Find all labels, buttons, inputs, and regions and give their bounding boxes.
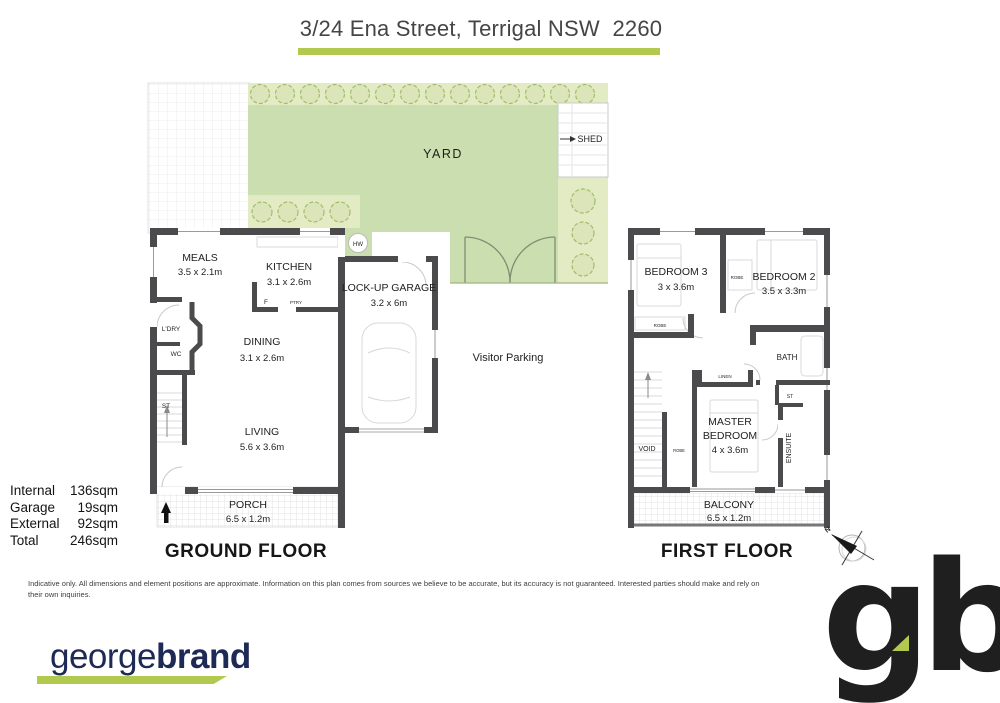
ground-floor-title: GROUND FLOOR xyxy=(165,541,327,562)
yard-lawn xyxy=(248,83,608,283)
stair-label: ST xyxy=(162,403,170,410)
meals-dims: 3.5 x 2.1m xyxy=(178,267,222,278)
area-value: 92sqm xyxy=(77,516,118,533)
pantry-label: PTRY xyxy=(290,300,302,305)
title-underline xyxy=(298,48,660,55)
paved-area xyxy=(148,83,250,233)
area-value: 19sqm xyxy=(77,500,118,517)
bedroom3-dims: 3 x 3.6m xyxy=(658,282,695,293)
gb-monogram: gb xyxy=(818,540,1000,703)
living-label: LIVING xyxy=(245,426,279,438)
robe-center-label: ROBE xyxy=(731,275,744,280)
laundry-label: L'DRY xyxy=(162,326,181,333)
area-value: 136sqm xyxy=(70,483,118,500)
dining-dims: 3.1 x 2.6m xyxy=(240,353,284,364)
area-label: External xyxy=(10,516,60,533)
hot-water-unit: HW xyxy=(349,234,368,253)
area-label: Internal xyxy=(10,483,55,500)
agency-logo-brand: brand xyxy=(156,637,251,676)
svg-text:HW: HW xyxy=(353,242,363,248)
void-label: VOID xyxy=(638,446,655,453)
meals-label: MEALS xyxy=(182,252,218,264)
master-dims: 4 x 3.6m xyxy=(712,445,749,456)
area-summary: Internal 136sqm Garage 19sqm External 92… xyxy=(10,483,118,549)
kitchen-label: KITCHEN xyxy=(266,261,312,273)
area-value: 246sqm xyxy=(70,533,118,550)
car-icon xyxy=(362,323,416,423)
agency-logo-underline xyxy=(37,676,227,684)
page-title: 3/24 Ena Street, Terrigal NSW 2260 xyxy=(281,16,681,42)
stairs-first xyxy=(634,372,662,476)
bath-label: BATH xyxy=(777,353,798,362)
yard-label: YARD xyxy=(423,147,463,161)
fridge-label: F xyxy=(264,299,268,306)
gb-monogram-text: gb xyxy=(822,529,1000,703)
disclaimer-text: Indicative only. All dimensions and elem… xyxy=(28,579,770,600)
first-floor-title: FIRST FLOOR xyxy=(661,541,793,562)
area-row: Total 246sqm xyxy=(10,533,118,550)
robe-master-label: ROBE xyxy=(673,448,685,453)
living-dims: 5.6 x 3.6m xyxy=(240,442,284,453)
agency-logo-george: george xyxy=(50,637,156,676)
balcony-label: BALCONY xyxy=(704,499,754,511)
garage-dims: 3.2 x 6m xyxy=(371,298,408,309)
area-label: Total xyxy=(10,533,39,550)
robe-bed3-label: ROBE xyxy=(654,323,667,328)
ground-floor-plan: SHED YARD xyxy=(140,75,645,575)
shed: SHED xyxy=(558,103,608,177)
dining-label: DINING xyxy=(244,336,281,348)
st-label: ST xyxy=(787,394,793,400)
agency-logo: georgebrand xyxy=(50,637,251,677)
balcony-dims: 6.5 x 1.2m xyxy=(707,513,751,524)
shed-label: SHED xyxy=(577,134,603,144)
visitor-parking-label: Visitor Parking xyxy=(473,352,544,364)
ensuite-label: ENSUITE xyxy=(786,433,793,464)
bedroom2-label: BEDROOM 2 xyxy=(752,271,815,283)
area-label: Garage xyxy=(10,500,55,517)
area-row: Internal 136sqm xyxy=(10,483,118,500)
kitchen-dims: 3.1 x 2.6m xyxy=(267,277,311,288)
first-floor-plan: BEDROOM 3 3 x 3.6m BEDROOM 2 3.5 x 3.3m … xyxy=(615,220,885,580)
linen-label: LINEN xyxy=(718,374,731,379)
area-row: Garage 19sqm xyxy=(10,500,118,517)
master-label-1: MASTER xyxy=(708,416,752,428)
porch-label: PORCH xyxy=(229,499,267,511)
master-label-2: BEDROOM xyxy=(703,430,757,442)
area-row: External 92sqm xyxy=(10,516,118,533)
bedroom3-label: BEDROOM 3 xyxy=(644,266,707,278)
porch-dims: 6.5 x 1.2m xyxy=(226,514,270,525)
garage-label: LOCK-UP GARAGE xyxy=(342,282,436,294)
bedroom2-dims: 3.5 x 3.3m xyxy=(762,286,806,297)
kitchen-counter xyxy=(257,237,338,247)
wc-label: WC xyxy=(171,351,182,358)
floorplan-page: 3/24 Ena Street, Terrigal NSW 2260 xyxy=(0,0,1000,703)
